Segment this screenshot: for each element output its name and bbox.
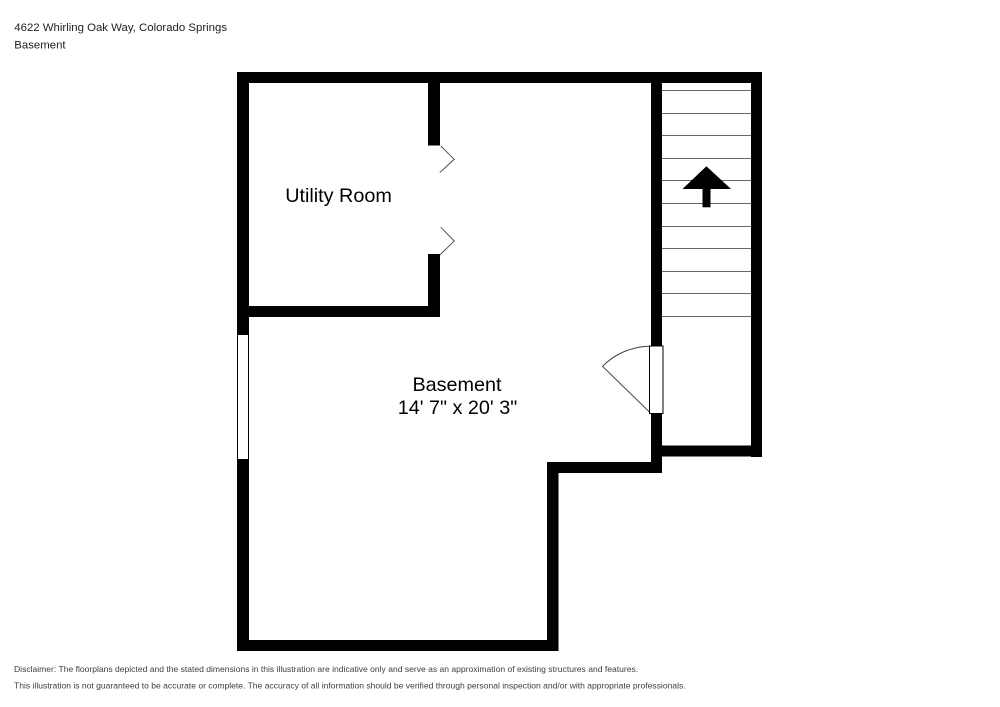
svg-text:This illustration is not guara: This illustration is not guaranteed to b… <box>14 681 686 691</box>
svg-text:Utility Room: Utility Room <box>285 185 392 207</box>
svg-text:Disclaimer: The floorplans dep: Disclaimer: The floorplans depicted and … <box>14 664 638 674</box>
svg-text:14' 7" x 20' 3": 14' 7" x 20' 3" <box>398 397 517 419</box>
svg-text:4622 Whirling Oak Way, Colorad: 4622 Whirling Oak Way, Colorado Springs <box>14 22 227 34</box>
svg-text:Basement: Basement <box>14 39 66 51</box>
svg-text:Basement: Basement <box>412 374 502 396</box>
